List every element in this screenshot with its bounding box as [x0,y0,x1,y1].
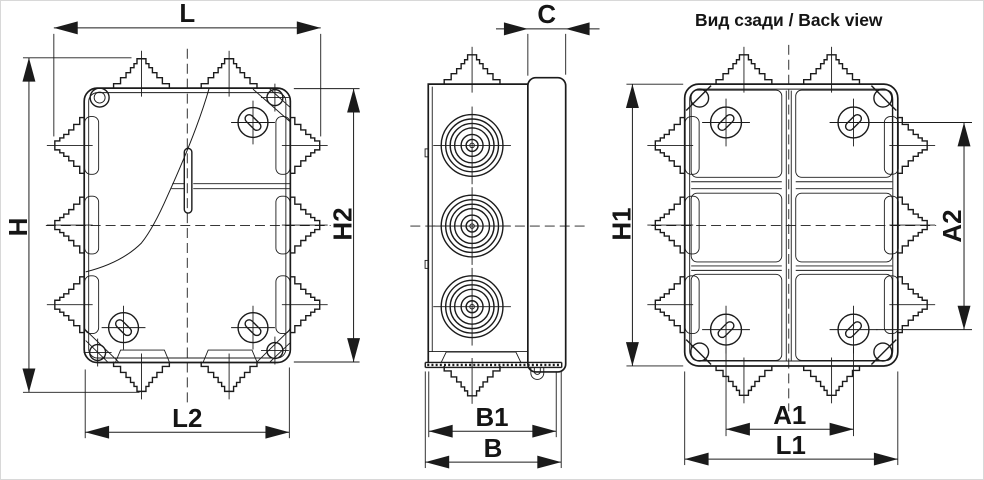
back-mounting-screws [702,99,877,354]
dim-label-C: C [537,1,556,29]
dim-label-B: B [484,435,503,463]
lid-center-slot [184,148,192,213]
back-view-title: Вид сзади / Back view [695,10,883,30]
dim-label-H1: H1 [608,208,636,241]
dim-label-L1: L1 [776,432,806,460]
dim-label-L2: L2 [172,405,202,433]
side-knockouts [433,107,511,346]
section-break-line [86,88,209,272]
front-view: L H H2 L2 [5,1,360,439]
dim-label-H: H [5,218,33,237]
lid-latch-hook [531,367,544,379]
back-view: Вид сзади / Back view [608,10,972,466]
dim-label-L: L [179,1,195,28]
dim-label-H2: H2 [330,208,358,241]
back-gland-pads [685,117,898,334]
side-view: C B1 B [410,1,599,469]
technical-drawing-junction-box: L H H2 L2 [1,1,983,479]
dim-label-A2: A2 [939,210,967,243]
dim-B1: B1 [429,371,556,437]
front-lid-screws [102,101,275,350]
dim-label-A1: A1 [773,402,806,430]
dim-C: C [496,1,600,76]
back-centerlines [651,45,936,411]
side-lid-outline [528,78,566,372]
dim-A2: A2 [876,122,972,329]
front-corner-boss [90,88,109,107]
dim-label-B1: B1 [475,404,508,432]
drawing-sheet: L H H2 L2 [0,0,984,480]
